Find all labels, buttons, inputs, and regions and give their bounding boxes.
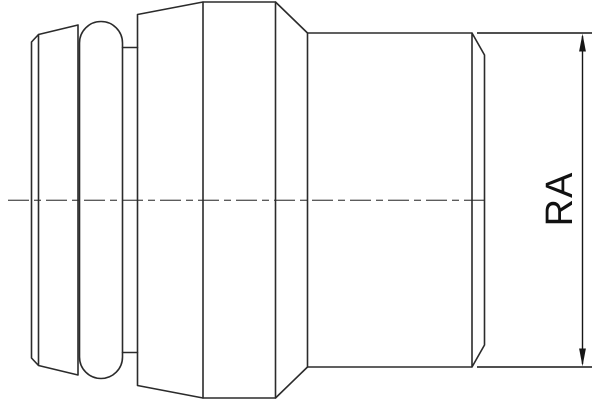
technical-drawing-canvas: RA bbox=[0, 0, 600, 400]
technical-drawing-page: RA bbox=[0, 0, 600, 400]
dimension-label: RA bbox=[539, 172, 581, 227]
arrowhead-up-icon bbox=[579, 34, 586, 52]
arrowhead-down-icon bbox=[579, 349, 586, 367]
